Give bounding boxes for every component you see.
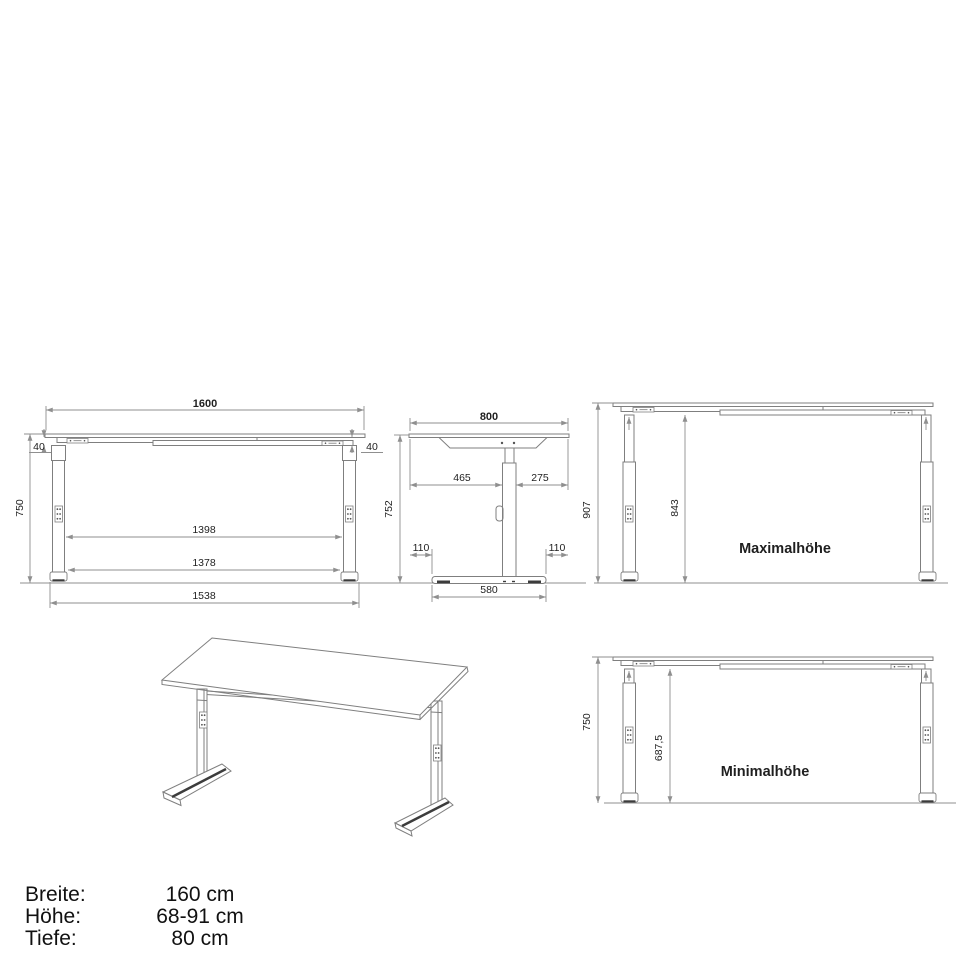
side-view: 800 465 275 752 110 110 580 (383, 411, 569, 602)
view-label-max: Maximalhöhe (739, 541, 831, 557)
foot-pad-icon (528, 581, 541, 584)
spec-label: Höhe: (25, 906, 120, 928)
foot-pad-icon (437, 581, 450, 584)
dim-label-offset-left: 465 (453, 472, 471, 484)
foot-right-max (919, 572, 936, 581)
dot-pad-icon (626, 506, 634, 522)
mount-bracket-icon (633, 662, 654, 667)
dim-label-feet-outer: 1538 (192, 590, 216, 602)
leg-joint-3d (197, 700, 207, 701)
column-upper-side (505, 448, 514, 463)
foot-left-front (50, 572, 67, 581)
foot-right-front (341, 572, 358, 581)
perspective-view (162, 638, 468, 836)
dim-label-width-top: 1600 (193, 398, 217, 410)
spec-value: 160 cm (120, 884, 280, 906)
dim-label-legs-inner: 1398 (192, 524, 216, 536)
dim-label-max-clear: 843 (669, 499, 681, 517)
desk-dimension-drawing: 1600 40 40 750 1398 1378 1538 (0, 0, 970, 971)
tabletop-front (45, 434, 365, 438)
mount-bracket-icon (633, 408, 654, 413)
spec-row-hoehe: Höhe: 68-91 cm (25, 906, 280, 928)
dim-label-foot-margin-right: 110 (549, 542, 566, 554)
leg-joint-3d (431, 712, 442, 713)
dim-label-offset-right: 275 (531, 472, 549, 484)
dim-label-height-front: 750 (14, 499, 26, 517)
foot-left-max (621, 572, 638, 581)
dot-pad-icon (626, 727, 634, 743)
spec-list: Breite: 160 cm Höhe: 68-91 cm Tiefe: 80 … (25, 884, 280, 950)
max-height-view: 907 843 Maximalhöhe (581, 403, 936, 583)
dim-label-overhang-left: 40 (33, 441, 45, 453)
dot-pad-icon (346, 506, 354, 522)
dim-label-foot-length: 580 (480, 584, 498, 596)
spec-label: Breite: (25, 884, 120, 906)
view-label-min: Minimalhöhe (721, 764, 810, 780)
technical-drawing-sheet: 1600 40 40 750 1398 1378 1538 (0, 0, 970, 971)
leg-left-3d (197, 689, 207, 777)
top-bracket-side (439, 438, 547, 449)
dot-pad-icon (55, 506, 63, 522)
dot-pad-icon (200, 712, 208, 728)
foot-right-min (919, 793, 936, 802)
spec-value: 68-91 cm (120, 906, 280, 928)
foot-left-min (621, 793, 638, 802)
leg-top-right-front (343, 446, 357, 461)
tabletop-max (613, 403, 933, 407)
dim-label-min-clear: 687,5 (653, 735, 665, 761)
spec-value: 80 cm (120, 928, 280, 950)
screw-dot-icon (513, 442, 515, 444)
front-view: 1600 40 40 750 1398 1378 1538 (14, 398, 383, 608)
dot-pad-icon (923, 727, 931, 743)
dot-pad-icon (434, 745, 442, 761)
mount-bracket-icon (891, 665, 912, 670)
spec-row-breite: Breite: 160 cm (25, 884, 280, 906)
screw-dot-icon (501, 442, 503, 444)
tabletop-min (613, 657, 933, 661)
min-height-view: 750 687,5 Minimalhöhe (581, 657, 936, 803)
spec-row-tiefe: Tiefe: 80 cm (25, 928, 280, 950)
leg-top-left-front (52, 446, 66, 461)
spec-label: Tiefe: (25, 928, 120, 950)
dim-label-feet-inner: 1378 (192, 557, 216, 569)
dim-label-foot-margin-left: 110 (413, 542, 430, 554)
column-side (503, 463, 517, 577)
mount-bracket-icon (322, 441, 343, 446)
tabletop-side (409, 434, 569, 438)
mount-bracket-icon (67, 439, 88, 444)
dim-label-height-side: 752 (383, 500, 395, 518)
dim-label-min-total: 750 (581, 713, 593, 731)
dim-label-max-total: 907 (581, 501, 593, 519)
mount-bracket-icon (891, 411, 912, 416)
dim-label-depth: 800 (480, 411, 498, 423)
cable-clip-icon (496, 506, 503, 521)
dim-label-overhang-right: 40 (366, 441, 378, 453)
tabletop-3d (162, 638, 467, 715)
dot-pad-icon (923, 506, 931, 522)
